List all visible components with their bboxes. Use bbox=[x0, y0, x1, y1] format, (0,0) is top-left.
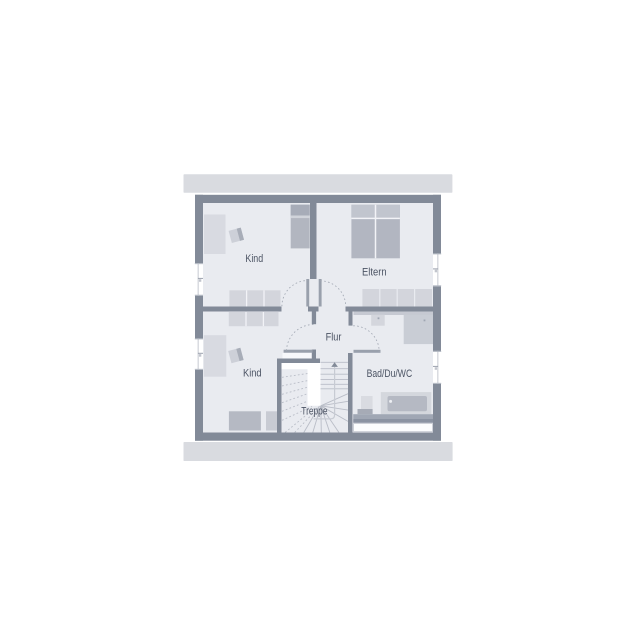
svg-text:Eltern: Eltern bbox=[362, 267, 387, 279]
svg-text:Flur: Flur bbox=[326, 332, 342, 344]
svg-text:Kind: Kind bbox=[245, 253, 263, 265]
svg-text:Bad/Du/WC: Bad/Du/WC bbox=[367, 368, 413, 380]
svg-text:Treppe: Treppe bbox=[301, 406, 327, 418]
svg-text:Kind: Kind bbox=[243, 368, 262, 380]
